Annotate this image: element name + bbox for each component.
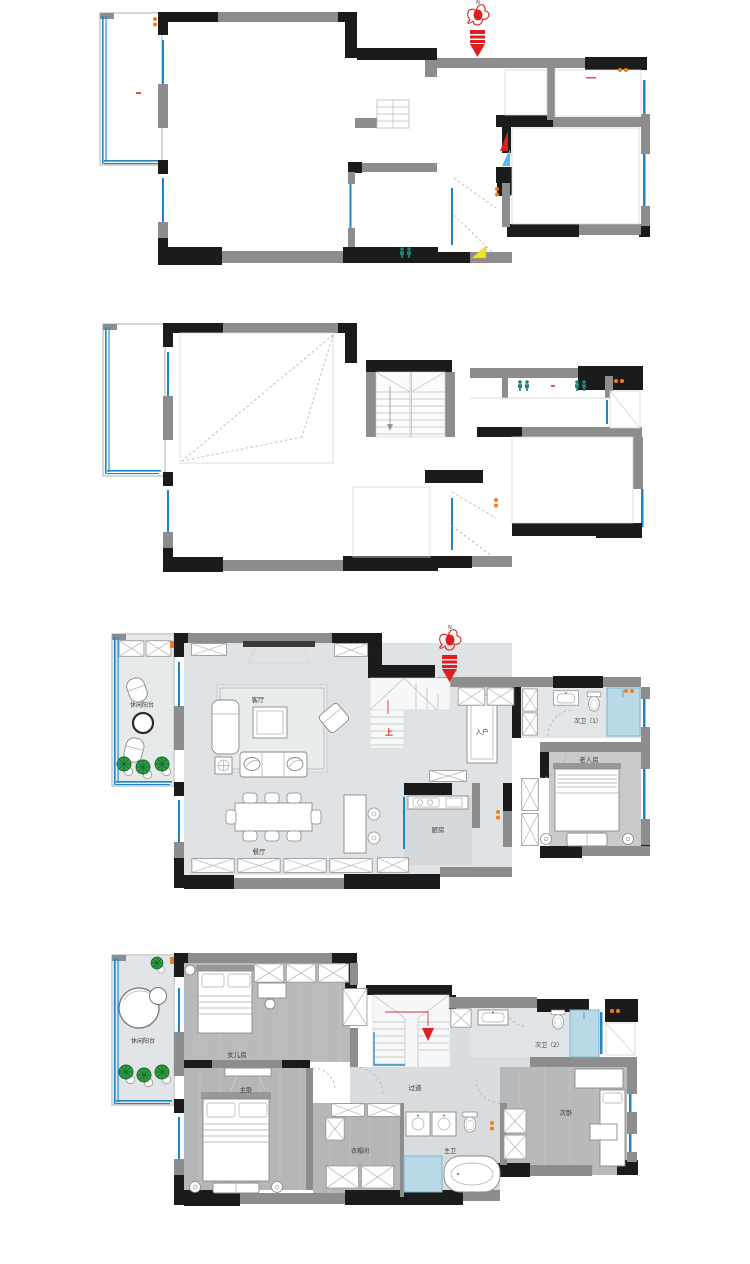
- floor-plan-1: [0, 0, 750, 300]
- label-masterbath: 主卫: [444, 1147, 456, 1155]
- label-balcony: 休闲阳台: [131, 1037, 155, 1045]
- orange-mark: [170, 641, 174, 648]
- stairs: [376, 372, 445, 437]
- label-living: 客厅: [252, 695, 266, 704]
- bed: [203, 1099, 269, 1181]
- nightstand: [185, 965, 195, 975]
- north-compass-icon: [468, 0, 489, 57]
- label-cloak: 衣帽间: [351, 1147, 369, 1155]
- bed-headboard: [201, 1092, 271, 1099]
- walls-black: [163, 323, 643, 572]
- desk: [258, 983, 286, 998]
- side-table: [215, 757, 232, 774]
- balcony-shell: [103, 324, 165, 476]
- room-outlines: [505, 70, 641, 224]
- tv-console: [225, 1068, 271, 1076]
- floor-plan-2: [0, 300, 750, 610]
- toilet: [587, 692, 601, 711]
- bath-door-lines: [452, 492, 496, 556]
- floor-plan-3: 休闲阳台: [0, 610, 750, 940]
- side-table: [590, 1124, 617, 1140]
- dining-table: [235, 803, 312, 831]
- bed: [555, 769, 619, 831]
- label-kitchen: 厨房: [432, 825, 445, 834]
- chaise: [212, 700, 239, 754]
- stool: [368, 832, 380, 844]
- stool: [368, 808, 380, 820]
- label-daughter: 女儿房: [227, 1050, 247, 1059]
- floor-plan-4: 休闲阳台: [0, 940, 750, 1264]
- void-outline: [180, 333, 333, 463]
- nightstand: [272, 1182, 283, 1193]
- stairs: [377, 100, 409, 128]
- desk-chair: [265, 999, 275, 1009]
- red-note-mark: [586, 77, 596, 79]
- bath-sink: [553, 691, 578, 705]
- label-bath1: 次卫（1）: [574, 717, 602, 725]
- nightstand: [190, 1182, 201, 1193]
- shower: [404, 1156, 442, 1192]
- toilet: [463, 1112, 477, 1132]
- dresser: [575, 1069, 623, 1088]
- label-dining: 餐厅: [253, 847, 267, 856]
- tv-panel: [243, 641, 315, 647]
- coffee-table: [253, 707, 287, 738]
- label-elder: 老人房: [579, 755, 599, 764]
- hanging-chair-ring: [150, 988, 167, 1005]
- label-stairs-up: 上: [385, 727, 393, 737]
- leaf-pillow: [287, 758, 303, 771]
- red-note-mark: [136, 92, 141, 94]
- bed-headboard: [196, 965, 254, 971]
- label-corridor: 过道: [409, 1083, 423, 1092]
- label-bath2: 次卫（2）: [535, 1041, 563, 1049]
- leaf-pillow: [244, 758, 260, 771]
- label-second: 次卧: [560, 1108, 574, 1117]
- bathtub: [444, 1156, 500, 1192]
- nightstand: [541, 834, 552, 845]
- floorplan-sheet: N: [0, 0, 750, 1264]
- walls-black: [158, 12, 650, 265]
- red-note-mark: [551, 385, 555, 387]
- round-table: [133, 713, 153, 733]
- label-entry: 入户: [476, 727, 489, 736]
- toilet: [551, 1010, 565, 1029]
- island-counter: [344, 795, 366, 853]
- switch-dots: [494, 498, 498, 508]
- balcony-shell: [100, 13, 162, 165]
- label-master: 主卧: [240, 1085, 254, 1094]
- orange-mark: [170, 957, 174, 964]
- nightstand: [623, 834, 634, 845]
- label-balcony: 休闲阳台: [130, 701, 154, 709]
- bath-door-lines: [454, 178, 496, 252]
